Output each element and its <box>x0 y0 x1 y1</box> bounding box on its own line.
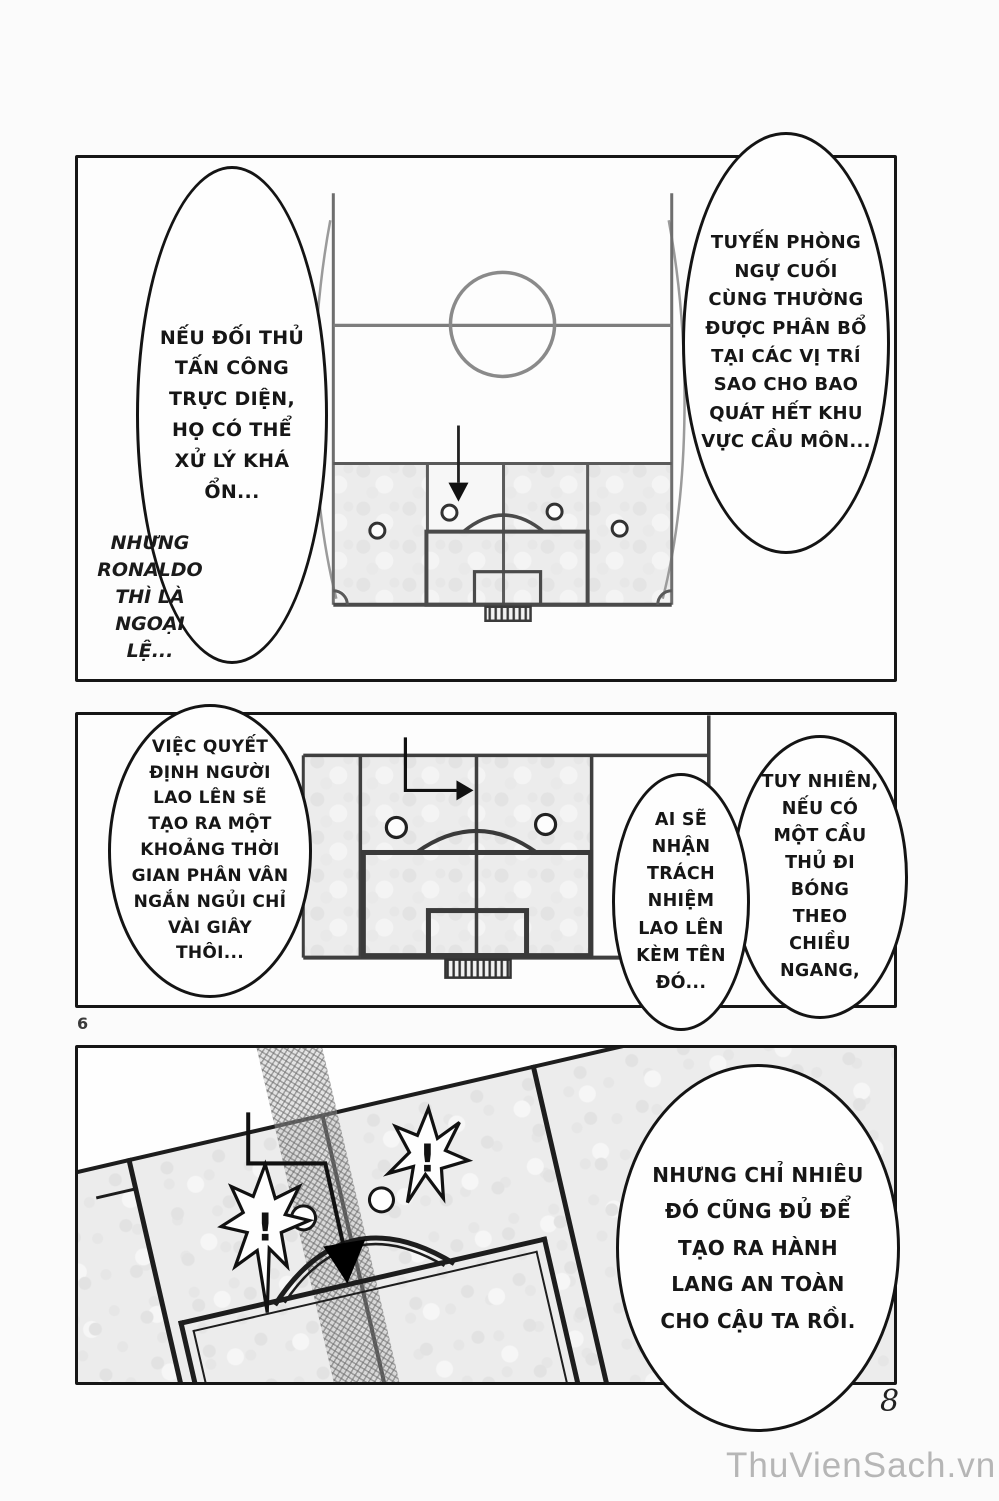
speech-text: NHƯNG CHỈ NHIÊU ĐÓ CŨNG ĐỦ ĐỂ TẠO RA HÀN… <box>652 1157 863 1339</box>
player-marker <box>547 504 562 519</box>
goal-net <box>485 607 530 621</box>
panel-sequence-marker: 6 <box>77 1014 89 1033</box>
exclamation-mark: ! <box>257 1206 274 1250</box>
speech-text: AI SẼ NHẬN TRÁCH NHIỆM LAO LÊN KÈM TÊN Đ… <box>636 807 726 997</box>
page-number: 8 <box>880 1384 899 1419</box>
panel-3: ! ! NHƯNG CHỈ NHIÊU ĐÓ CŨNG ĐỦ ĐỂ TẠO RA… <box>75 1045 897 1385</box>
exclamation-mark: ! <box>419 1136 436 1180</box>
panel-1: NẾU ĐỐI THỦ TẤN CÔNG TRỰC DIỆN, HỌ CÓ TH… <box>75 155 897 682</box>
player-marker <box>386 817 406 837</box>
field-shading <box>303 755 591 957</box>
exclamation-burst-icon: ! <box>221 1164 309 1312</box>
player-marker <box>612 521 627 536</box>
manga-page: { "page": { "panel_sequence_marker": "6"… <box>0 0 999 1501</box>
goal-net <box>445 960 510 978</box>
speech-text: NẾU ĐỐI THỦ TẤN CÔNG TRỰC DIỆN, HỌ CÓ TH… <box>160 323 304 508</box>
speech-bubble: TUY NHIÊN, NẾU CÓ MỘT CẦU THỦ ĐI BÓNG TH… <box>732 735 908 1019</box>
speech-text: TUYẾN PHÒNG NGỰ CUỐI CÙNG THƯỜNG ĐƯỢC PH… <box>701 229 870 457</box>
speech-bubble: AI SẼ NHẬN TRÁCH NHIỆM LAO LÊN KÈM TÊN Đ… <box>612 773 750 1031</box>
speech-text: TUY NHIÊN, NẾU CÓ MỘT CẦU THỦ ĐI BÓNG TH… <box>762 769 879 986</box>
panel-2: VIỆC QUYẾT ĐỊNH NGƯỜI LAO LÊN SẼ TẠO RA … <box>75 712 897 1008</box>
player-marker <box>370 523 385 538</box>
watermark: ThuVienSach.vn <box>726 1446 996 1486</box>
player-marker <box>536 814 556 834</box>
speech-bubble: TUYẾN PHÒNG NGỰ CUỐI CÙNG THƯỜNG ĐƯỢC PH… <box>682 132 890 554</box>
exclamation-burst-icon: ! <box>388 1108 468 1202</box>
speech-text: VIỆC QUYẾT ĐỊNH NGƯỜI LAO LÊN SẼ TẠO RA … <box>132 735 289 967</box>
narration-caption: NHƯNG RONALDO THÌ LÀ NGOẠI LỆ... <box>80 530 220 665</box>
player-marker <box>442 505 457 520</box>
attack-channel-zone <box>427 465 502 531</box>
speech-bubble: VIỆC QUYẾT ĐỊNH NGƯỜI LAO LÊN SẼ TẠO RA … <box>108 704 312 998</box>
speech-bubble: NHƯNG CHỈ NHIÊU ĐÓ CŨNG ĐỦ ĐỂ TẠO RA HÀN… <box>616 1064 900 1432</box>
